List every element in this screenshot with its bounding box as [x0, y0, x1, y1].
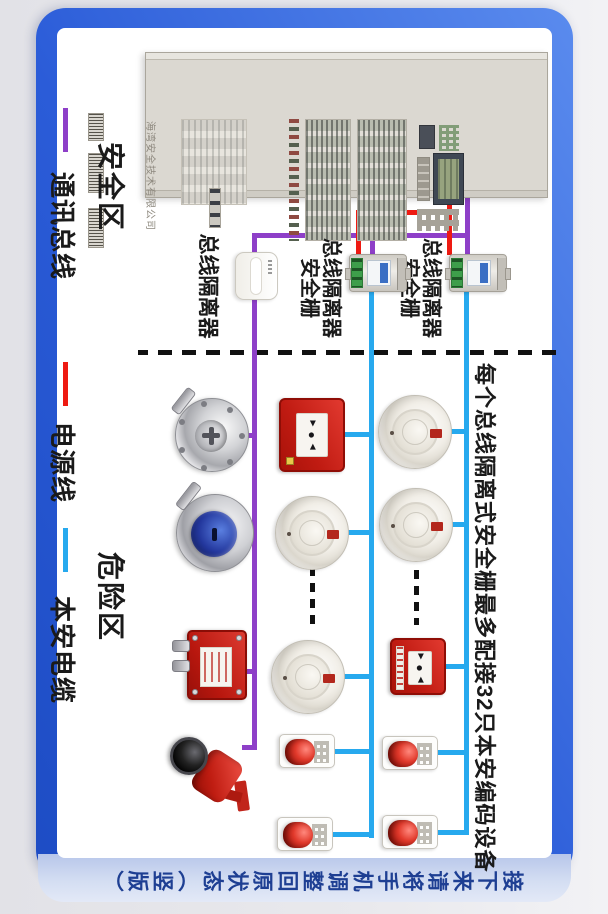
- safety-barrier-2: [449, 254, 507, 292]
- safety-barrier-1: [349, 254, 407, 292]
- safety-barrier-1-label: 总线隔离器 安全栅: [298, 227, 342, 349]
- call-point-arrow-left: ►: [415, 651, 425, 661]
- sounder-horn: [388, 820, 418, 846]
- barrier-2-terminals: [451, 258, 463, 288]
- safe-zone-label: 安全区: [92, 142, 132, 232]
- smoke-detector-label-chip: [327, 530, 339, 539]
- barrier-2-connector-top: [505, 268, 511, 280]
- panel-loop-card-slots-1: [357, 119, 407, 241]
- legend-comm-bus-swatch: [63, 108, 68, 152]
- ia-cable-bus-1: [369, 290, 374, 838]
- more-devices-dashes-row2: [414, 570, 419, 625]
- bus-isolator-label: 总线隔离器: [194, 222, 224, 350]
- smoke-detector-inner-ring: [299, 520, 325, 546]
- comm-bus-panel-to-barrier2: [465, 198, 470, 255]
- barrier-2-sticker-bar: [480, 263, 488, 283]
- sounder-strobe-2: [382, 815, 438, 849]
- smoke-detector-led: [283, 676, 287, 680]
- ia-cable-stub-c4: [436, 830, 464, 835]
- sounder-vent-grid: [417, 822, 432, 844]
- flame-detector: [164, 735, 250, 811]
- smoke-detector-label-chip: [323, 674, 335, 683]
- screw: [192, 635, 198, 641]
- panel-lcd-screen: [433, 153, 464, 205]
- flame-detector-lens: [170, 737, 208, 775]
- safety-barrier-2-label-line1: 总线隔离器: [420, 227, 442, 349]
- barrier-1-connector-bottom: [345, 268, 351, 280]
- smoke-detector-1: [378, 395, 452, 469]
- ia-cable-stub-c2: [444, 664, 464, 669]
- bus-isolator-marking: [268, 260, 272, 276]
- panel-lcd-content: [438, 159, 459, 199]
- smoke-detector-label-chip: [431, 522, 443, 531]
- manual-call-point-1: ►●◄: [279, 398, 345, 472]
- call-point-button: ●: [414, 664, 426, 671]
- ia-cable-stub-b5: [331, 832, 369, 837]
- call-point-logo-chip: [286, 457, 294, 465]
- gas-detector-window: [212, 528, 217, 541]
- sounder-strobe-1: [382, 736, 438, 770]
- legend-ia-cable-swatch: [63, 528, 68, 572]
- smoke-detector-2: [379, 488, 453, 562]
- bus-isolator-cover: [250, 257, 262, 295]
- ia-cable-stub-c3: [436, 750, 464, 755]
- barrier-2-sticker: [467, 260, 491, 286]
- smoke-detector-3: [275, 496, 349, 570]
- ia-cable-stub-b2: [347, 530, 369, 535]
- zone-separator-dashed-line: [138, 350, 556, 355]
- more-devices-dashes-row1: [310, 567, 315, 631]
- ia-cable-bus-2: [464, 290, 469, 835]
- panel-status-display: [419, 125, 435, 149]
- smoke-detector-inner-ring: [295, 664, 321, 690]
- barrier-1-terminals: [351, 258, 363, 288]
- cable-gland: [172, 660, 190, 672]
- call-point-button: ●: [306, 431, 318, 438]
- smoke-detector-led: [391, 524, 395, 528]
- panel-brand-text: 海湾安全技术有限公司: [144, 117, 159, 235]
- smoke-detector-led: [287, 532, 291, 536]
- barrier-capacity-annotation: 每个总线隔离式安全栅最多配接32只本安编码设备: [470, 363, 502, 872]
- smoke-detector-inner-ring: [403, 512, 429, 538]
- panel-slot-leds: [289, 119, 299, 241]
- sounder-horn: [283, 822, 313, 848]
- ia-cable-stub-b1: [343, 432, 369, 437]
- detector-cross: [202, 433, 220, 438]
- screw: [236, 635, 242, 641]
- gas-detector: [176, 494, 254, 572]
- barrier-1-sticker-bar: [380, 263, 388, 283]
- comm-bus-to-isolator: [252, 233, 257, 254]
- fire-alarm-control-panel: 海湾安全技术有限公司: [145, 52, 548, 198]
- panel-loop-card-slots-2: [305, 119, 351, 241]
- bus-isolator-module: [235, 252, 278, 300]
- call-point-plate-text: [204, 652, 227, 682]
- barrier-1-connector-top: [405, 268, 411, 280]
- call-point-panel: ►●◄: [296, 413, 328, 457]
- sounder-vent-grid: [314, 741, 329, 763]
- ia-cable-stub-b3: [343, 674, 369, 679]
- smoke-detector-4: [271, 640, 345, 714]
- panel-left-flange: [146, 53, 547, 60]
- screw: [236, 689, 242, 695]
- diagram-stage: 接下来请将手机调整回原状态（竖版） 海湾安全技术有: [0, 0, 608, 914]
- sounder-horn: [285, 739, 315, 765]
- sounder-strobe-4: [277, 817, 333, 851]
- safety-barrier-1-label-line2: 安全栅: [298, 227, 320, 349]
- call-point-panel: ►●◄: [408, 651, 432, 685]
- call-point-plate: [200, 647, 232, 687]
- barrier-1-sticker: [367, 260, 391, 286]
- sounder-vent-grid: [312, 824, 327, 846]
- panel-led-indicators: [439, 125, 459, 151]
- panel-keypad: [417, 157, 430, 201]
- safety-barrier-1-label-line1: 总线隔离器: [320, 227, 342, 349]
- call-point-label-strip: [396, 646, 404, 690]
- explosion-proof-detector: [175, 398, 249, 472]
- smoke-detector-inner-ring: [402, 419, 428, 445]
- legend-ia-cable-label: 本安电缆: [45, 596, 82, 704]
- sounder-strobe-3: [279, 734, 335, 768]
- smoke-detector-led: [390, 431, 394, 435]
- panel-barcode-1: [88, 113, 104, 141]
- sounder-vent-grid: [417, 743, 432, 765]
- hazard-zone-label: 危险区: [92, 552, 132, 642]
- legend-comm-bus-label: 通讯总线: [45, 172, 82, 280]
- call-point-arrow-right: ◄: [307, 442, 317, 452]
- barrier-2-connector-bottom: [445, 268, 451, 280]
- call-point-arrow-right: ◄: [415, 675, 425, 685]
- manual-call-point-2: ►●◄: [390, 638, 446, 695]
- ia-cable-stub-b4: [333, 749, 369, 754]
- screw: [192, 689, 198, 695]
- rotate-hint-text: 接下来请将手机调整回原状态（竖版）: [74, 864, 524, 894]
- sounder-horn: [388, 741, 418, 767]
- cable-gland: [172, 640, 190, 652]
- screenshot-viewport: 接下来请将手机调整回原状态（竖版） 海湾安全技术有: [0, 0, 608, 914]
- detector-bolts: [239, 433, 245, 439]
- smoke-detector-label-chip: [430, 429, 442, 438]
- legend-power-line-swatch: [63, 362, 68, 406]
- legend-power-line-label: 电源线: [45, 422, 82, 503]
- explosion-proof-call-point: [187, 630, 247, 700]
- call-point-arrow-left: ►: [307, 418, 317, 428]
